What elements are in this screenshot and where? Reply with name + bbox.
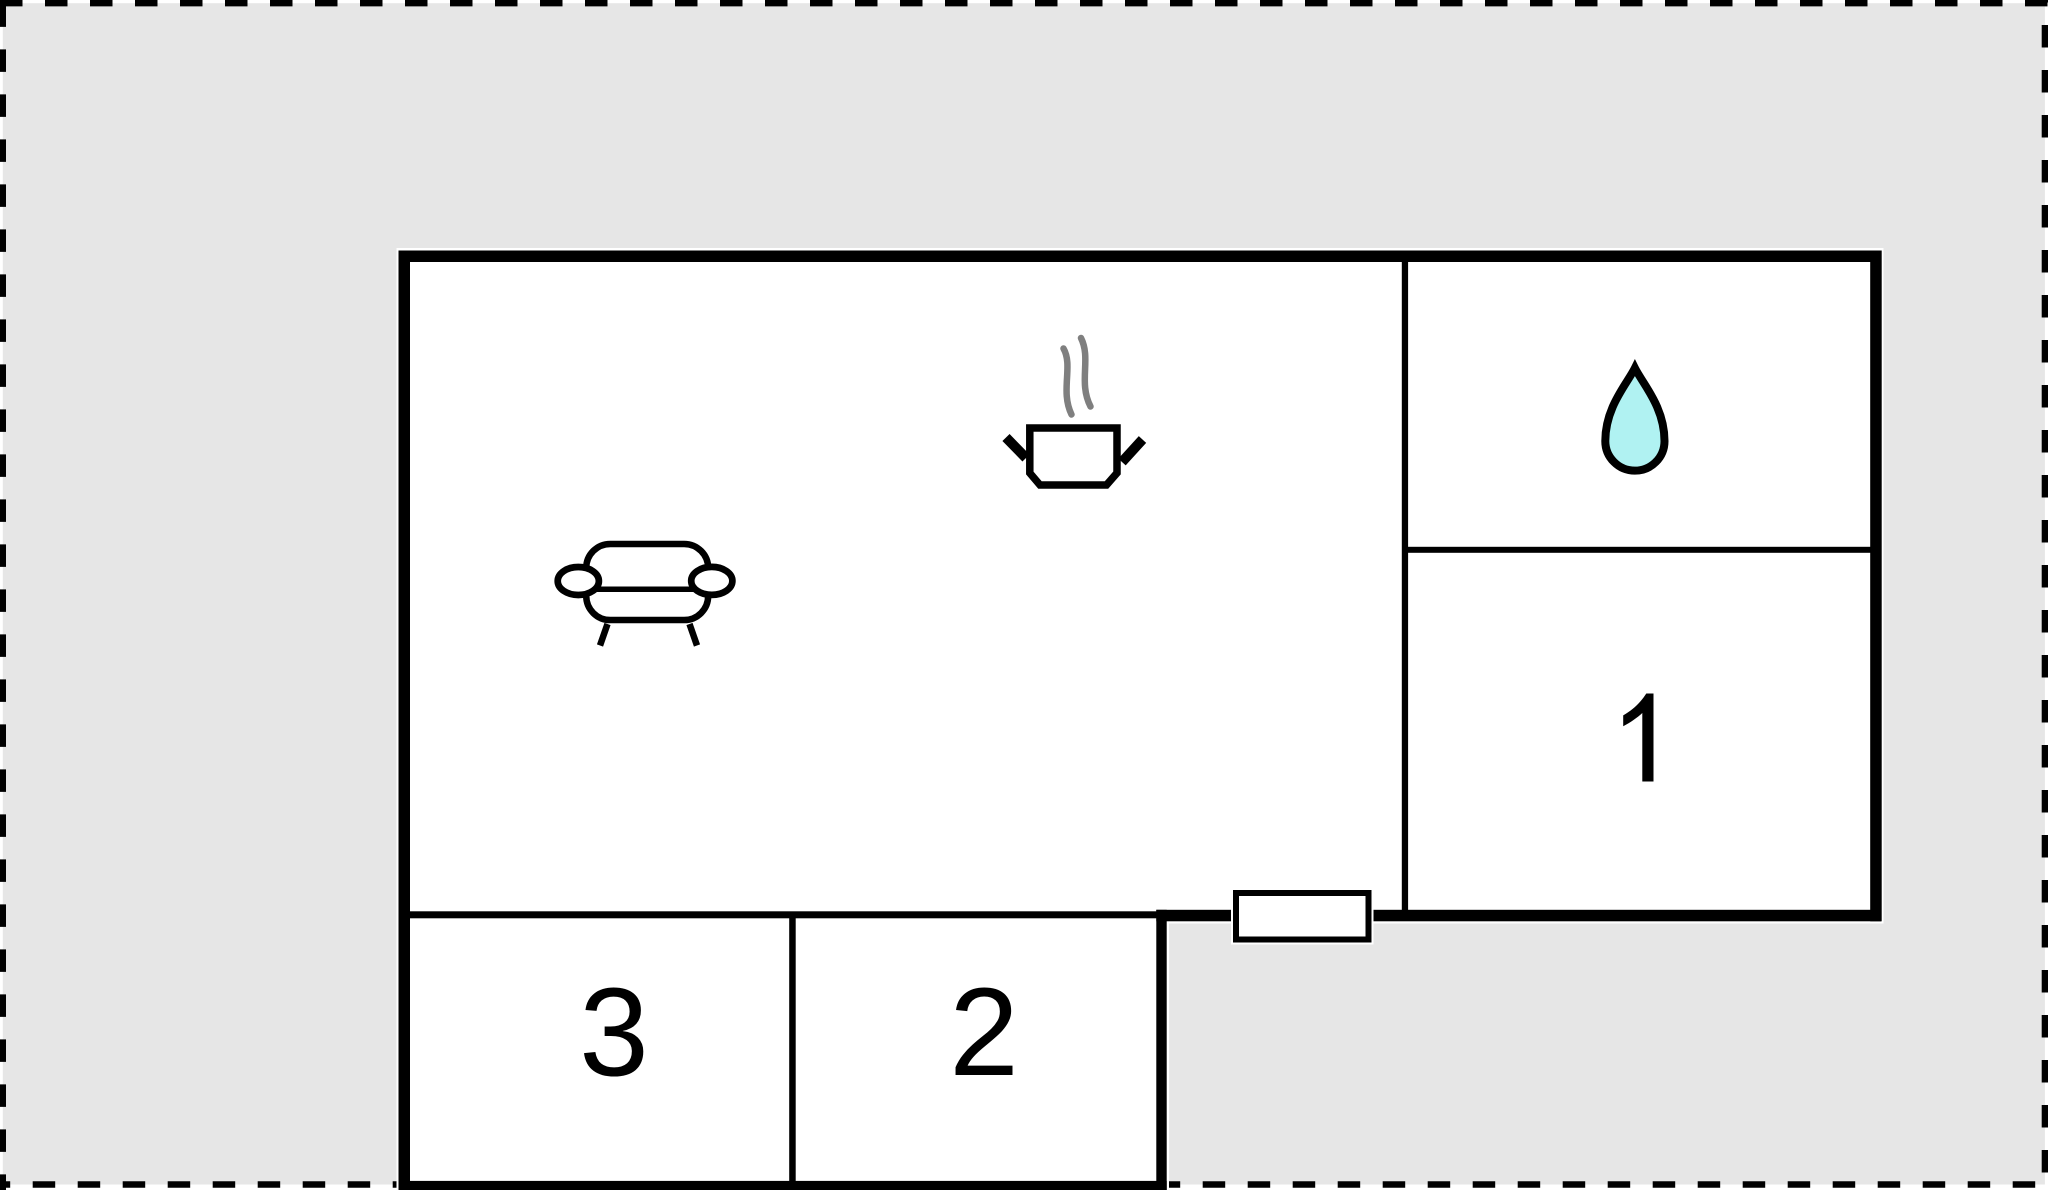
svg-text:3: 3 — [579, 964, 649, 1103]
svg-text:2: 2 — [949, 963, 1019, 1102]
